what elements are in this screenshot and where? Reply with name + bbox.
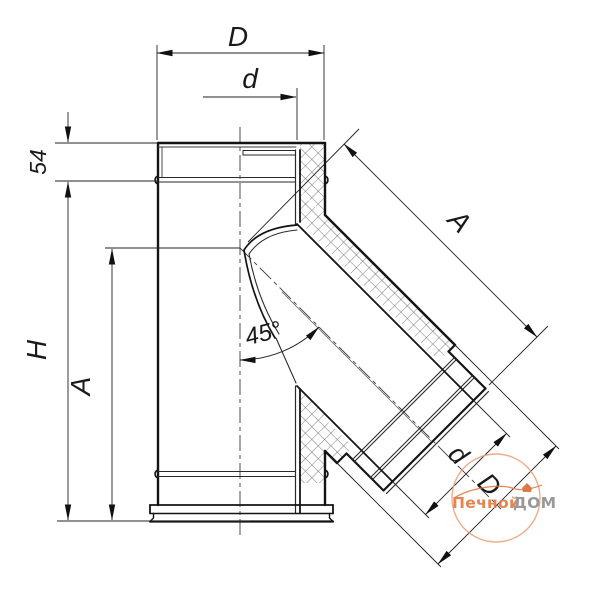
label-inner-diameter-top: d	[242, 63, 259, 94]
flange-crimp-feet	[150, 514, 333, 522]
branch-end-face	[384, 389, 486, 491]
insulation-hatch	[300, 143, 454, 483]
ext-branch-end	[489, 326, 548, 385]
collar-bead-1	[353, 358, 457, 462]
label-branch-angle: 45°	[242, 316, 284, 351]
label-branch-length: A	[441, 202, 478, 239]
technical-drawing-45deg-tee: D d 54 H A 45° A d D Печной Д	[0, 0, 600, 600]
hatch-bottom-column	[300, 389, 325, 483]
ext-branch-d-lower	[393, 482, 430, 519]
watermark-brand-gray: ДОМ	[513, 494, 556, 512]
label-total-height: H	[21, 339, 52, 360]
label-collar-height: 54	[25, 149, 51, 175]
watermark-brand-orange: Печной	[452, 494, 520, 512]
branch-liner-upper	[297, 224, 474, 401]
watermark: Печной ДОМ	[452, 454, 556, 542]
hatch-branch-upper-band	[300, 192, 454, 361]
branch-upper-shell	[325, 215, 455, 345]
branch-collar-lower	[347, 454, 384, 491]
saddle-edge	[276, 338, 296, 383]
dim-top	[157, 45, 324, 140]
dim-line-A-branch	[344, 144, 537, 337]
dim-left	[55, 112, 250, 521]
house-icon	[522, 483, 532, 492]
label-outer-diameter-top: D	[228, 21, 248, 52]
label-branch-axis-height: A	[65, 377, 96, 398]
ext-branch-d-upper	[474, 401, 511, 438]
branch-end-face-bead	[387, 392, 489, 494]
